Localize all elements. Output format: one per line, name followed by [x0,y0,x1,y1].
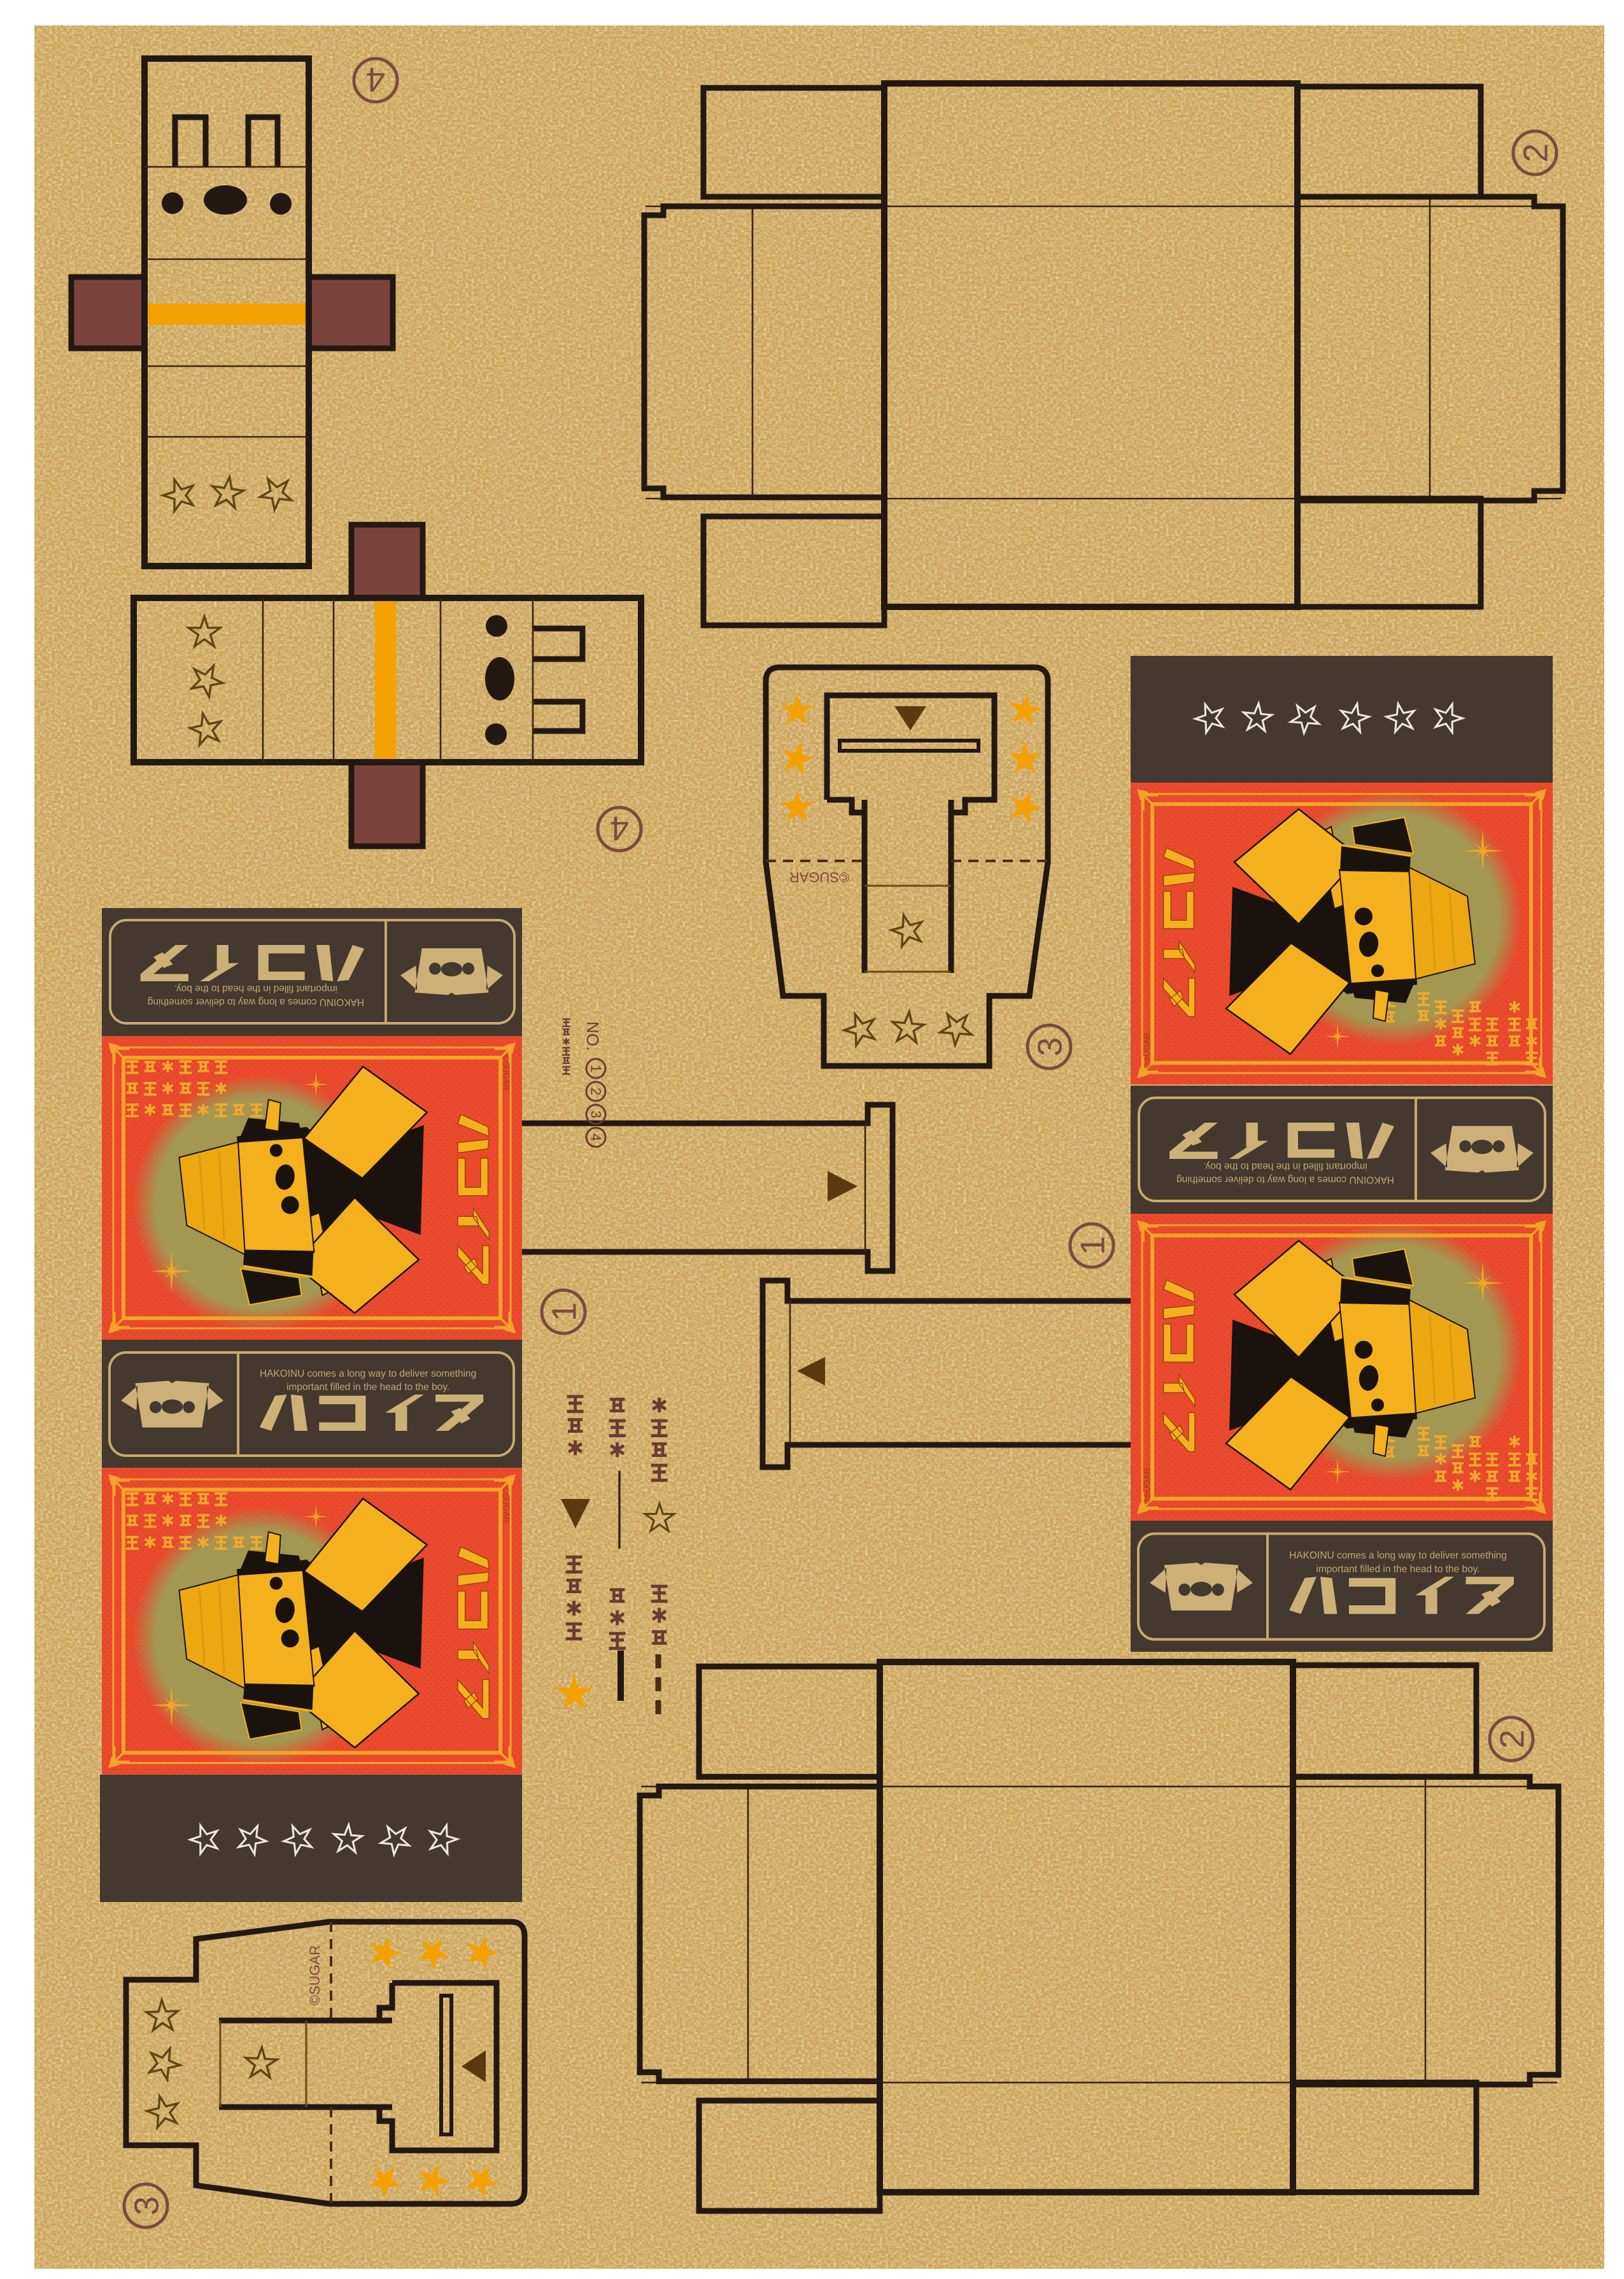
svg-text:1: 1 [588,1065,604,1072]
svg-text:4: 4 [366,60,385,99]
svg-text:4: 4 [610,809,629,848]
svg-text:NO.: NO. [583,1021,602,1051]
svg-text:3: 3 [127,2196,166,2215]
svg-text:1: 1 [545,1302,583,1321]
svg-text:3: 3 [588,1111,604,1118]
svg-text:2: 2 [1493,1729,1531,1749]
svg-text:2: 2 [1516,143,1555,162]
svg-text:3: 3 [1031,1037,1069,1056]
svg-text:4: 4 [588,1133,604,1141]
svg-text:2: 2 [588,1088,604,1095]
svg-text:1: 1 [1073,1236,1112,1255]
